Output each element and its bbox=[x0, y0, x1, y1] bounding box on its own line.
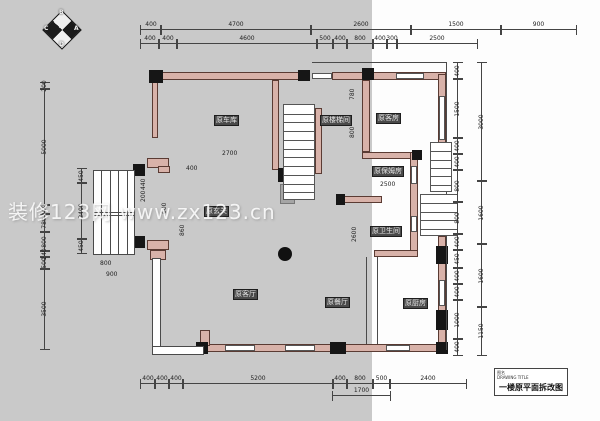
stair-tread bbox=[421, 212, 457, 213]
thin-wall bbox=[152, 346, 204, 355]
dim-segment-right-outer: 1600 bbox=[477, 180, 487, 245]
interior-dim: 800 bbox=[350, 127, 356, 138]
dim-value: 800 bbox=[354, 376, 365, 382]
interior-dim: 900 bbox=[106, 272, 117, 278]
room-label-bathroom: 原卫生间 bbox=[370, 226, 402, 237]
wall bbox=[272, 80, 279, 170]
dim-value: 900 bbox=[533, 22, 544, 28]
wall bbox=[147, 240, 169, 250]
dim-value: 3500 bbox=[42, 301, 48, 316]
stair-tread bbox=[431, 168, 451, 169]
dim-value: 400 bbox=[334, 36, 345, 42]
stair-tread bbox=[284, 192, 314, 193]
stair-tread bbox=[284, 140, 314, 141]
thin-wall bbox=[152, 258, 161, 350]
interior-dim: 780 bbox=[350, 89, 356, 100]
dim-segment-bottom: 5200 bbox=[182, 379, 334, 389]
dim-value: 400 bbox=[455, 270, 461, 281]
dim-segment-right-inner: 400 bbox=[453, 338, 463, 356]
window bbox=[386, 345, 410, 351]
dim-value: 5200 bbox=[250, 376, 265, 382]
stair-tread bbox=[431, 151, 451, 152]
dim-value: 2600 bbox=[353, 22, 368, 28]
window bbox=[312, 73, 332, 79]
stair-tread bbox=[284, 166, 314, 167]
dim-segment-bottom-sub: 1700 bbox=[332, 391, 391, 401]
window bbox=[225, 345, 255, 351]
stair-tread bbox=[284, 131, 314, 132]
plan-line bbox=[366, 257, 367, 344]
dim-value: 400 bbox=[374, 36, 385, 42]
stair-treads bbox=[283, 104, 315, 200]
wall bbox=[362, 80, 370, 152]
stair-tread bbox=[431, 160, 451, 161]
dim-segment-top-inner: 800 bbox=[346, 39, 374, 49]
stair-treads bbox=[430, 142, 452, 192]
dim-value: 2500 bbox=[429, 36, 444, 42]
plan-line bbox=[312, 62, 446, 63]
interior-dim: 2500 bbox=[380, 182, 395, 188]
dim-value: 3000 bbox=[479, 114, 485, 129]
column bbox=[298, 70, 310, 81]
dim-value: 450 bbox=[79, 170, 85, 181]
window bbox=[411, 216, 417, 232]
dim-segment-top-outer: 400 bbox=[140, 25, 162, 35]
watermark-text: 装修123网 www.zx123.cn bbox=[8, 196, 276, 225]
dim-value: 4600 bbox=[239, 36, 254, 42]
column bbox=[412, 150, 422, 160]
dim-segment-right-inner: 800 bbox=[453, 169, 463, 203]
dim-value: 4700 bbox=[228, 22, 243, 28]
dim-value: 1150 bbox=[479, 323, 485, 338]
dim-value: 400 bbox=[144, 36, 155, 42]
floor-plan-canvas: B A D C 原车库原楼梯间原客房原玄关原保姆房原卫生间原客厅原餐厅原厨房27… bbox=[0, 0, 600, 421]
column bbox=[362, 68, 374, 80]
dim-value: 400 bbox=[142, 376, 153, 382]
dim-segment-right-inner: 1500 bbox=[453, 78, 463, 139]
dim-segment-top-outer: 2600 bbox=[310, 25, 412, 35]
column-circle bbox=[278, 247, 292, 261]
dim-segment-top-inner: 400 bbox=[158, 39, 178, 49]
dim-segment-top-outer: 4700 bbox=[160, 25, 312, 35]
room-label-nanny-room: 原保姆房 bbox=[372, 166, 404, 177]
dim-value: 2400 bbox=[420, 376, 435, 382]
stair-tread bbox=[284, 149, 314, 150]
dim-value: 800 bbox=[354, 36, 365, 42]
window bbox=[285, 345, 315, 351]
dim-segment-bottom: 2400 bbox=[389, 379, 467, 389]
dim-segment-right-outer: 1150 bbox=[477, 306, 487, 356]
window bbox=[411, 166, 417, 184]
interior-dim: 860 bbox=[180, 225, 186, 236]
room-label-dining-room: 原餐厅 bbox=[325, 297, 350, 308]
dim-value: 1700 bbox=[354, 388, 369, 394]
column bbox=[336, 194, 345, 205]
stair-tread bbox=[421, 203, 457, 204]
dim-value: 500 bbox=[376, 376, 387, 382]
stair-tread bbox=[421, 229, 457, 230]
interior-dim: 2600 bbox=[352, 227, 358, 242]
drawing-title: 一楼原平面拆改图 bbox=[497, 382, 565, 393]
dim-segment-right-inner: 800 bbox=[453, 201, 463, 235]
stair-tread bbox=[284, 114, 314, 115]
interior-dim: 2700 bbox=[222, 151, 237, 157]
wall bbox=[374, 250, 418, 257]
dim-segment-left-outer: 3500 bbox=[40, 268, 50, 350]
room-label-kitchen: 原厨房 bbox=[403, 298, 428, 309]
room-label-stairwell: 原楼梯间 bbox=[320, 115, 352, 126]
interior-dim: 400 bbox=[186, 166, 197, 172]
dim-segment-top-inner: 4600 bbox=[176, 39, 318, 49]
dim-value: 500 bbox=[42, 257, 48, 268]
room-label-living-room: 原客厅 bbox=[233, 289, 258, 300]
stair-tread bbox=[284, 157, 314, 158]
dim-segment-top-outer: 1500 bbox=[410, 25, 502, 35]
dim-segment-right-outer: 1600 bbox=[477, 243, 487, 308]
wall bbox=[332, 72, 446, 80]
room-label-garage: 原车库 bbox=[214, 115, 239, 126]
wall bbox=[340, 196, 382, 203]
dim-segment-left-outer: 5000 bbox=[40, 88, 50, 206]
dim-value: 400 bbox=[455, 65, 461, 76]
wall bbox=[152, 72, 310, 80]
dim-value: 400 bbox=[156, 376, 167, 382]
dim-value: 400 bbox=[170, 376, 181, 382]
dim-segment-left-inner: 450 bbox=[77, 238, 87, 254]
dim-value: 800 bbox=[455, 212, 461, 223]
stair-tread bbox=[421, 220, 457, 221]
dim-segment-top-outer: 900 bbox=[500, 25, 577, 35]
title-block: 图名 DRAWING TITLE 一楼原平面拆改图 bbox=[494, 368, 568, 396]
dim-value: 800 bbox=[455, 180, 461, 191]
dim-segment-top-inner: 400 bbox=[140, 39, 160, 49]
dim-segment-top-inner: 2500 bbox=[396, 39, 478, 49]
window bbox=[439, 280, 445, 306]
dim-value: 400 bbox=[455, 156, 461, 167]
dim-value: 400 bbox=[334, 376, 345, 382]
dim-value: 400 bbox=[455, 140, 461, 151]
plan-line bbox=[377, 257, 378, 344]
dim-value: 800 bbox=[42, 236, 48, 247]
stair-tread bbox=[284, 122, 314, 123]
window bbox=[439, 96, 445, 140]
dim-segment-right-outer: 3000 bbox=[477, 62, 487, 182]
wall bbox=[152, 80, 158, 138]
dim-value: 500 bbox=[319, 36, 330, 42]
interior-dim: 800 bbox=[100, 261, 111, 267]
stair-tread bbox=[284, 184, 314, 185]
dim-value: 5000 bbox=[42, 139, 48, 154]
dim-value: 450 bbox=[455, 253, 461, 264]
dim-value: 400 bbox=[455, 341, 461, 352]
column bbox=[330, 342, 346, 354]
column bbox=[149, 70, 163, 83]
dim-value: 1600 bbox=[479, 268, 485, 283]
dim-value: 1000 bbox=[455, 312, 461, 327]
dim-segment-right-inner: 1000 bbox=[453, 299, 463, 340]
dim-value: 400 bbox=[145, 22, 156, 28]
dim-value: 400 bbox=[455, 286, 461, 297]
stair-tread bbox=[284, 175, 314, 176]
dim-value: 1500 bbox=[455, 101, 461, 116]
stair-tread bbox=[431, 176, 451, 177]
interior-dim: 440 bbox=[141, 179, 147, 190]
title-block-sublabel: DRAWING TITLE bbox=[497, 375, 565, 380]
room-label-guest-room: 原客房 bbox=[376, 113, 401, 124]
dim-value: 1500 bbox=[448, 22, 463, 28]
dim-value: 450 bbox=[79, 240, 85, 251]
dim-value: 1600 bbox=[479, 205, 485, 220]
wall bbox=[158, 166, 170, 173]
dim-segment-right-inner: 450 bbox=[453, 249, 463, 269]
stair-tread bbox=[431, 185, 451, 186]
window bbox=[396, 73, 424, 79]
dim-value: 400 bbox=[455, 236, 461, 247]
dim-value: 400 bbox=[162, 36, 173, 42]
